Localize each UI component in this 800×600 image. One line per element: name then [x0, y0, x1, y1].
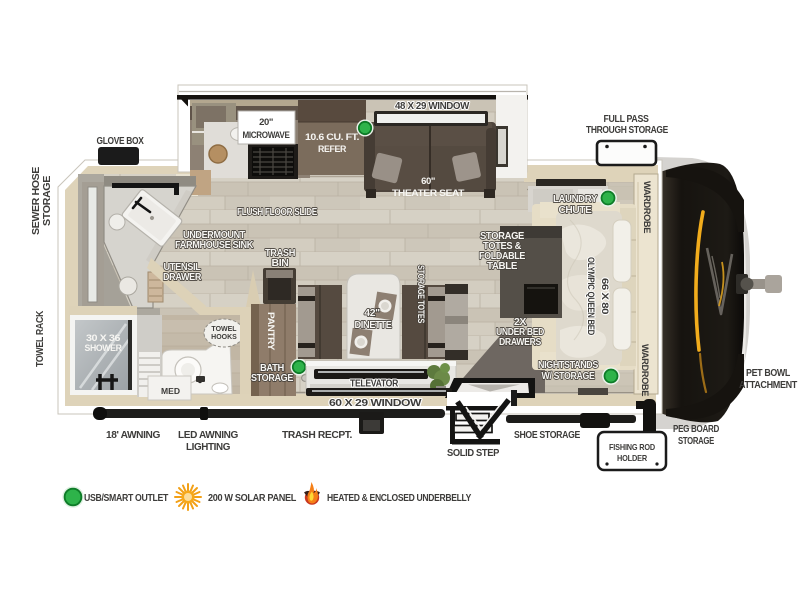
- svg-text:USB/SMART OUTLET: USB/SMART OUTLET: [84, 492, 169, 504]
- svg-text:FLUSH FLOOR SLIDE: FLUSH FLOOR SLIDE: [237, 206, 317, 218]
- svg-text:BIN: BIN: [272, 257, 289, 269]
- svg-text:GLOVE BOX: GLOVE BOX: [97, 135, 144, 147]
- svg-text:W/ STORAGE: W/ STORAGE: [542, 370, 595, 382]
- svg-text:STORAGE: STORAGE: [678, 435, 714, 447]
- svg-text:OLYMPIC QUEEN BED: OLYMPIC QUEEN BED: [585, 257, 596, 335]
- svg-text:MED: MED: [161, 386, 180, 396]
- svg-text:60": 60": [421, 176, 435, 187]
- svg-text:DINETTE: DINETTE: [355, 319, 392, 331]
- svg-text:TOWEL: TOWEL: [211, 326, 237, 333]
- svg-text:HOOKS: HOOKS: [211, 334, 237, 341]
- svg-text:LED AWNING: LED AWNING: [178, 429, 238, 441]
- svg-text:SHOE STORAGE: SHOE STORAGE: [514, 429, 580, 441]
- svg-text:LIGHTING: LIGHTING: [186, 441, 230, 453]
- svg-text:SHOWER: SHOWER: [85, 343, 122, 354]
- svg-text:CHUTE: CHUTE: [559, 204, 592, 216]
- svg-text:48 X 29 WINDOW: 48 X 29 WINDOW: [395, 100, 469, 112]
- svg-text:SOLID STEP: SOLID STEP: [447, 447, 499, 459]
- svg-text:WARDROBE: WARDROBE: [639, 344, 650, 396]
- svg-text:MICROWAVE: MICROWAVE: [243, 130, 290, 141]
- svg-text:ATTACHMENT: ATTACHMENT: [739, 379, 798, 391]
- svg-text:60 X 29 WINDOW: 60 X 29 WINDOW: [329, 397, 422, 409]
- svg-text:20": 20": [259, 117, 273, 128]
- svg-text:PANTRY: PANTRY: [265, 312, 276, 351]
- svg-text:TABLE: TABLE: [487, 260, 517, 272]
- svg-text:PEG BOARD: PEG BOARD: [673, 423, 720, 435]
- svg-text:DRAWERS: DRAWERS: [499, 336, 541, 348]
- svg-text:FISHING ROD: FISHING ROD: [609, 442, 655, 452]
- svg-text:TRASH RECPT.: TRASH RECPT.: [282, 429, 352, 441]
- svg-text:10.6 CU. FT.: 10.6 CU. FT.: [305, 132, 359, 143]
- svg-text:66 X 80: 66 X 80: [599, 278, 610, 314]
- svg-text:THEATER SEAT: THEATER SEAT: [392, 188, 465, 199]
- svg-text:TOWEL RACK: TOWEL RACK: [34, 310, 46, 367]
- svg-text:STORAGE: STORAGE: [251, 372, 293, 384]
- svg-text:18' AWNING: 18' AWNING: [106, 429, 160, 441]
- svg-text:REFER: REFER: [318, 144, 346, 155]
- svg-text:HOLDER: HOLDER: [617, 453, 647, 463]
- svg-text:STORAGE TOTES: STORAGE TOTES: [415, 265, 426, 323]
- svg-text:PET BOWL: PET BOWL: [746, 367, 791, 379]
- svg-text:TELEVATOR: TELEVATOR: [350, 378, 399, 390]
- svg-text:DRAWER: DRAWER: [163, 271, 202, 283]
- svg-text:42": 42": [364, 307, 380, 319]
- svg-text:WARDROBE: WARDROBE: [641, 181, 652, 233]
- svg-text:200 W SOLAR PANEL: 200 W SOLAR PANEL: [208, 492, 297, 504]
- svg-text:HEATED & ENCLOSED UNDERBELLY: HEATED & ENCLOSED UNDERBELLY: [327, 492, 471, 504]
- svg-text:FARMHOUSE SINK: FARMHOUSE SINK: [175, 239, 254, 251]
- svg-text:STORAGE: STORAGE: [41, 176, 53, 226]
- svg-text:THROUGH STORAGE: THROUGH STORAGE: [586, 124, 668, 136]
